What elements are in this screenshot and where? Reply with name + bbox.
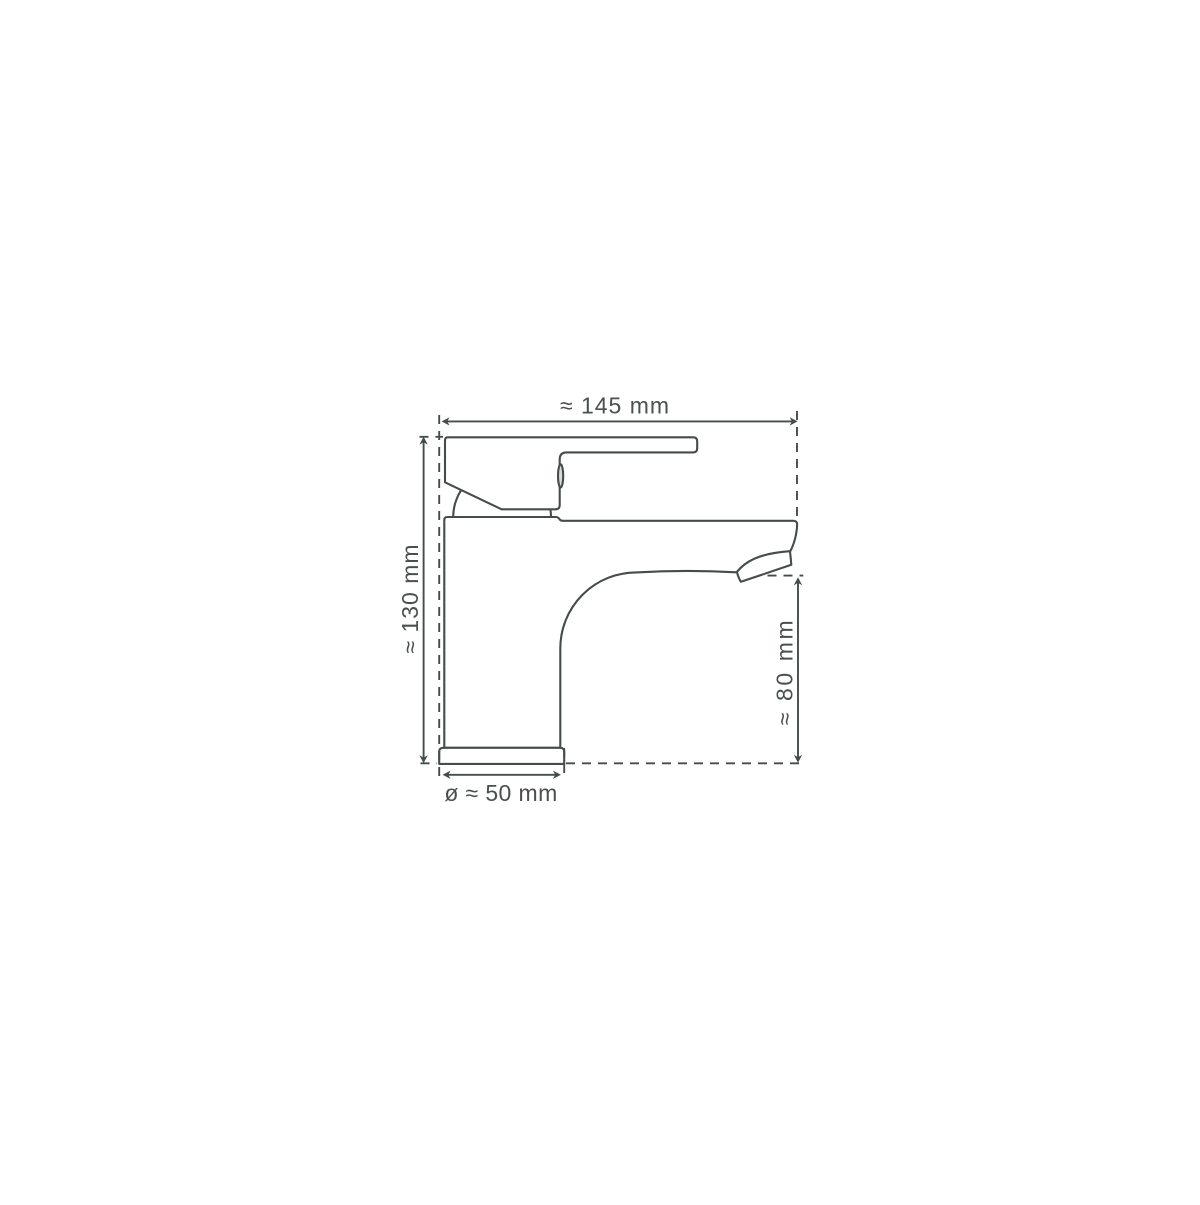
- svg-text:≈ 80 mm: ≈ 80 mm: [771, 618, 797, 726]
- svg-text:≈ 130 mm: ≈ 130 mm: [397, 543, 423, 653]
- svg-text:≈ 145 mm: ≈ 145 mm: [560, 392, 670, 418]
- svg-text:ø ≈ 50 mm: ø ≈ 50 mm: [444, 780, 557, 806]
